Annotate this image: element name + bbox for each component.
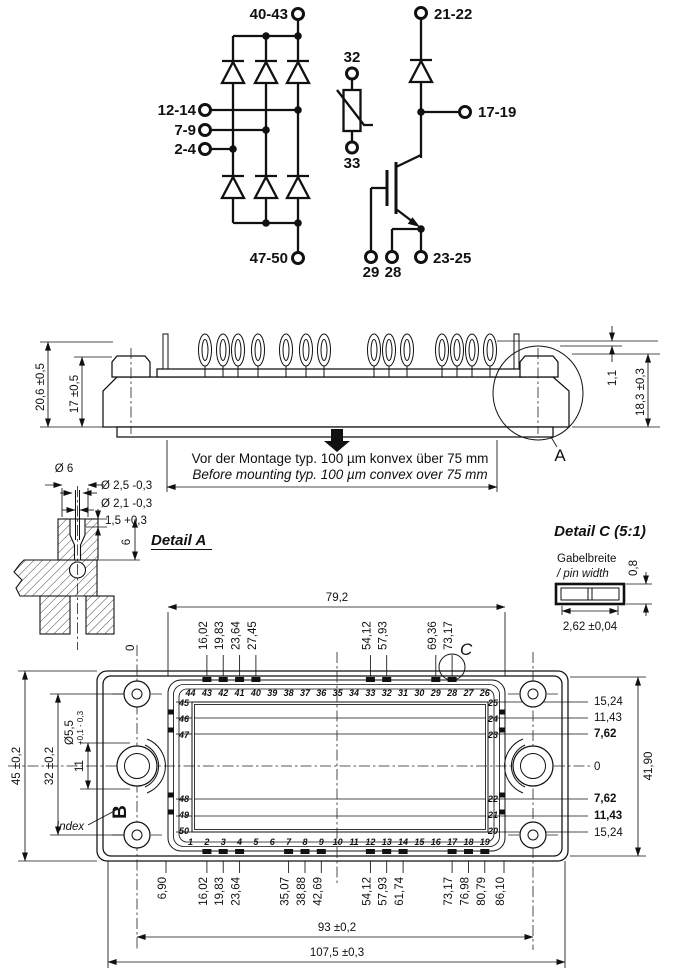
- pin-number: 12: [365, 837, 375, 847]
- thermistor-symbol: 32 33: [337, 49, 373, 172]
- index-label: Index: [56, 821, 85, 833]
- pin-position-label: 54,12: [361, 621, 373, 650]
- note-text-de: Vor der Montage typ. 100 µm konvex über …: [192, 451, 489, 466]
- dimension-label: Ø 2,5 -0,3: [101, 480, 152, 492]
- pin-number: 20: [487, 826, 498, 836]
- row-position-label: 11,43: [594, 810, 622, 822]
- datasheet-drawing-page: 40-43 47-50 12-147-92-4 32 33: [0, 0, 676, 974]
- pin-number: 11: [349, 837, 358, 847]
- row-position-label: 15,24: [594, 696, 623, 708]
- pin-number: 39: [267, 688, 277, 698]
- pin-number: 21: [487, 810, 498, 820]
- dimension-label: 20,6 ±0,5: [35, 363, 47, 411]
- terminal-circle: [387, 252, 398, 263]
- pin-number: 8: [302, 837, 307, 847]
- terminal-circle: [460, 107, 471, 118]
- row-position-label: 11,43: [594, 712, 622, 724]
- pin-window-inner: [195, 705, 486, 830]
- dimension-label: 45 ±0,2: [11, 747, 23, 785]
- side-view: A 20,6 ±0,5 17 ±0,5 1,1 18,3 ±0,3 Vor de…: [35, 326, 660, 492]
- end-post: [163, 334, 168, 369]
- hole-tolerance-label: +0,1 - 0,3: [76, 710, 85, 745]
- terminal-label: 23-25: [433, 250, 471, 267]
- pin-position-label: 16,02: [198, 621, 210, 650]
- terminal-circle: [293, 9, 304, 20]
- hole-diameter-label: Ø5,5: [64, 720, 76, 745]
- circuit-schematic: 40-43 47-50 12-147-92-4 32 33: [158, 6, 517, 281]
- dimension-label: 93 ±0,2: [318, 922, 356, 934]
- pin-number: 32: [382, 688, 392, 698]
- terminal-circle: [200, 125, 211, 136]
- row-position-label: 7,62: [594, 728, 616, 740]
- pin-number: 49: [178, 810, 189, 820]
- pin-number: 29: [430, 688, 441, 698]
- terminal-circle: [200, 144, 211, 155]
- pin-number: 10: [333, 837, 343, 847]
- detail-c-ref-label: C: [460, 640, 473, 659]
- pin-number: 23: [487, 730, 498, 740]
- detail-c-title: Detail C (5:1): [554, 523, 646, 540]
- pin-position-label: 73,17: [443, 877, 455, 906]
- pin-position-label: 23,64: [231, 621, 243, 650]
- dimension-label: 11: [74, 760, 86, 772]
- terminal-label: 29: [363, 264, 380, 281]
- dimension-label: 79,2: [326, 592, 348, 604]
- mounting-boss-right: [520, 356, 558, 377]
- pin-width-label-de: Gabelbreite: [557, 553, 616, 565]
- pin-frame-mid: [174, 685, 500, 847]
- dimension-label: 17 ±0,5: [69, 375, 81, 413]
- terminal-label: 7-9: [174, 122, 196, 139]
- detail-a-view: Ø 6 Ø 2,5 -0,3 Ø 2,1 -0,3 1,5 +0,3 6 Det…: [14, 463, 212, 650]
- zero-reference-label: 0: [125, 645, 137, 651]
- dimension-label: 18,3 ±0,3: [635, 368, 647, 416]
- dimension-label: 6: [121, 539, 133, 545]
- pin-position-label: 86,10: [495, 877, 507, 906]
- detail-c-view: Detail C (5:1) Gabelbreite / pin width 0…: [554, 523, 652, 633]
- pin-position-label: 76,98: [460, 877, 472, 906]
- row-position-label: 0: [594, 761, 600, 773]
- pin-position-label: 42,69: [312, 877, 324, 906]
- terminal-circle: [200, 105, 211, 116]
- terminal-circle: [366, 252, 377, 263]
- dimension-label: Ø 6: [55, 463, 74, 475]
- terminal-label: 47-50: [250, 250, 288, 267]
- pin-number: 18: [463, 837, 473, 847]
- terminal-label: 33: [344, 155, 361, 172]
- pin-number: 41: [234, 688, 245, 698]
- pin-number: 4: [236, 837, 242, 847]
- pin-position-label: 73,17: [443, 621, 455, 650]
- rectifier-bridge: 40-43 47-50 12-147-92-4: [158, 6, 309, 267]
- fork-pin-outline: [556, 584, 624, 604]
- dimension-label: 41,90: [643, 752, 655, 781]
- pin-number: 47: [178, 730, 190, 740]
- pin-number: 42: [217, 688, 228, 698]
- pin-frame-outer: [168, 680, 505, 851]
- pin-number: 26: [479, 688, 491, 698]
- terminal-label: 17-19: [478, 104, 516, 121]
- pin-number: 43: [201, 688, 212, 698]
- terminal-label: 32: [344, 49, 361, 66]
- dimension-label: 0,8: [628, 560, 640, 576]
- pin-number: 15: [414, 837, 425, 847]
- pin-number: 45: [178, 698, 190, 708]
- pin-number: 46: [178, 714, 190, 724]
- pin-number: 2: [203, 837, 209, 847]
- pin-position-label: 27,45: [247, 621, 259, 650]
- pin-position-label: 80,79: [476, 877, 488, 906]
- pin-position-label: 54,12: [361, 877, 373, 906]
- pin-position-label: 23,64: [231, 876, 243, 905]
- pin-position-label: 57,93: [378, 621, 390, 650]
- pin-number: 35: [333, 688, 344, 698]
- row-position-label: 7,62: [594, 793, 616, 805]
- detail-a-ref-label: A: [554, 446, 566, 465]
- substrate-plate: [157, 369, 523, 377]
- row-position-label: 15,24: [594, 827, 623, 839]
- pin-number: 16: [431, 837, 442, 847]
- base-section: [86, 596, 114, 634]
- pin-window: [192, 702, 488, 832]
- convex-arrow: [331, 429, 343, 441]
- pin-number: 17: [447, 837, 458, 847]
- pin-number: 33: [365, 688, 375, 698]
- pin-number: 19: [480, 837, 490, 847]
- pin-position-label: 16,02: [198, 877, 210, 906]
- dimension-label: 107,5 ±0,3: [310, 947, 364, 959]
- terminal-circle: [347, 68, 358, 79]
- detail-a-title: Detail A: [151, 532, 206, 549]
- pin-number: 36: [316, 688, 327, 698]
- pin-number: 30: [414, 688, 424, 698]
- pin-position-label: 19,83: [214, 621, 226, 650]
- section-b-label: B: [110, 805, 131, 819]
- terminal-circle: [416, 252, 427, 263]
- pin-number: 50: [179, 826, 189, 836]
- pin-number: 25: [487, 698, 499, 708]
- pin-position-label: 35,07: [280, 877, 292, 906]
- pin-number: 34: [349, 688, 359, 698]
- pin-number: 28: [446, 688, 457, 698]
- top-view: 44434241403938373635343332313029282726 1…: [8, 592, 655, 968]
- pin-number: 14: [398, 837, 408, 847]
- terminal-label: 40-43: [250, 6, 288, 23]
- pin-position-label: 19,83: [214, 877, 226, 906]
- pin-number: 3: [221, 837, 226, 847]
- dimension-label: 2,62 ±0,04: [563, 621, 618, 633]
- pin-number: 24: [487, 714, 498, 724]
- terminal-label: 2-4: [174, 141, 196, 158]
- dimension-label: 32 ±0,2: [44, 747, 56, 785]
- pin-number: 27: [462, 688, 474, 698]
- terminal-label: 12-14: [158, 102, 197, 119]
- technical-drawing: 40-43 47-50 12-147-92-4 32 33: [0, 0, 676, 974]
- pin-number: 38: [284, 688, 294, 698]
- base-section: [40, 596, 70, 634]
- pin-position-label: 6,90: [157, 877, 169, 899]
- pin-frame-rim: [179, 689, 494, 842]
- pin-number: 31: [398, 688, 408, 698]
- terminal-circle: [416, 8, 427, 19]
- pin-number: 22: [487, 794, 498, 804]
- pin-number: 1: [188, 837, 193, 847]
- pin-number: 40: [250, 688, 261, 698]
- terminal-label: 21-22: [434, 6, 472, 23]
- pin-number: 9: [319, 837, 324, 847]
- pin-position-label: 69,36: [427, 621, 439, 650]
- dimension-label: Ø 2,1 -0,3: [101, 498, 152, 510]
- terminal-circle: [293, 253, 304, 264]
- terminal-label: 28: [385, 264, 402, 281]
- pin-number: 37: [300, 688, 311, 698]
- pin-position-label: 61,74: [394, 876, 406, 905]
- pin-position-label: 38,88: [296, 877, 308, 906]
- pin-position-label: 57,93: [378, 877, 390, 906]
- note-text-en: Before mounting typ. 100 µm convex over …: [192, 467, 487, 482]
- terminal-circle: [347, 142, 358, 153]
- pin-number: 13: [382, 837, 392, 847]
- igbt-circuit: 21-22 17-19 29 28 23-25: [363, 6, 517, 281]
- dimension-label: 1,1: [607, 370, 619, 386]
- pin-number: 44: [184, 688, 195, 698]
- dimension-label: 1,5 +0,3: [105, 515, 147, 527]
- module-body-outline: [103, 377, 569, 427]
- pin-width-label-en: / pin width: [556, 568, 609, 580]
- pin-number: 48: [178, 794, 189, 804]
